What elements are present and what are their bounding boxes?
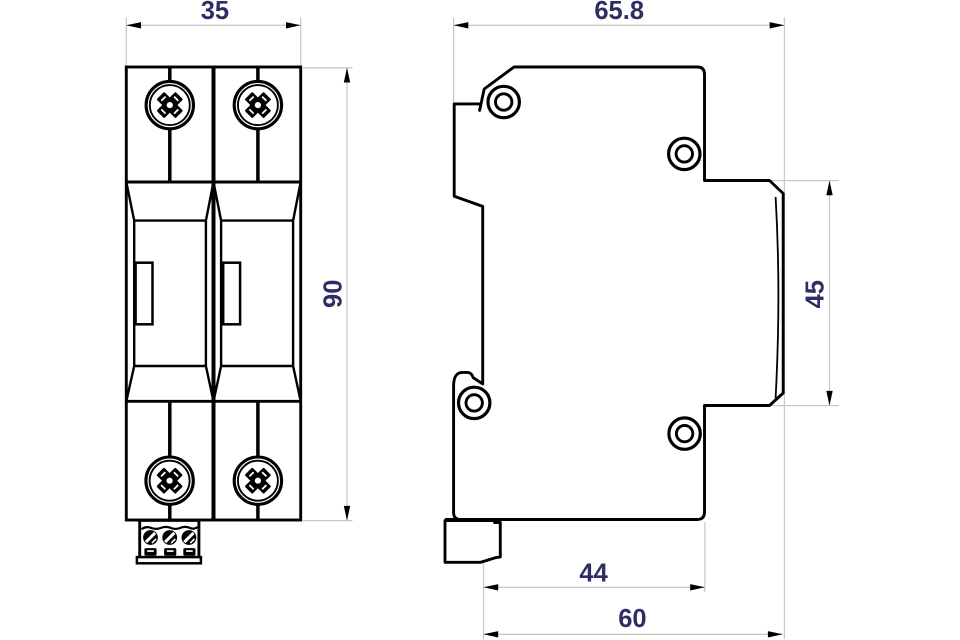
svg-text:45: 45	[801, 280, 829, 308]
svg-text:44: 44	[579, 559, 608, 587]
svg-text:35: 35	[201, 0, 229, 25]
svg-text:65.8: 65.8	[594, 0, 644, 25]
svg-text:60: 60	[618, 605, 646, 633]
svg-text:90: 90	[319, 280, 347, 308]
